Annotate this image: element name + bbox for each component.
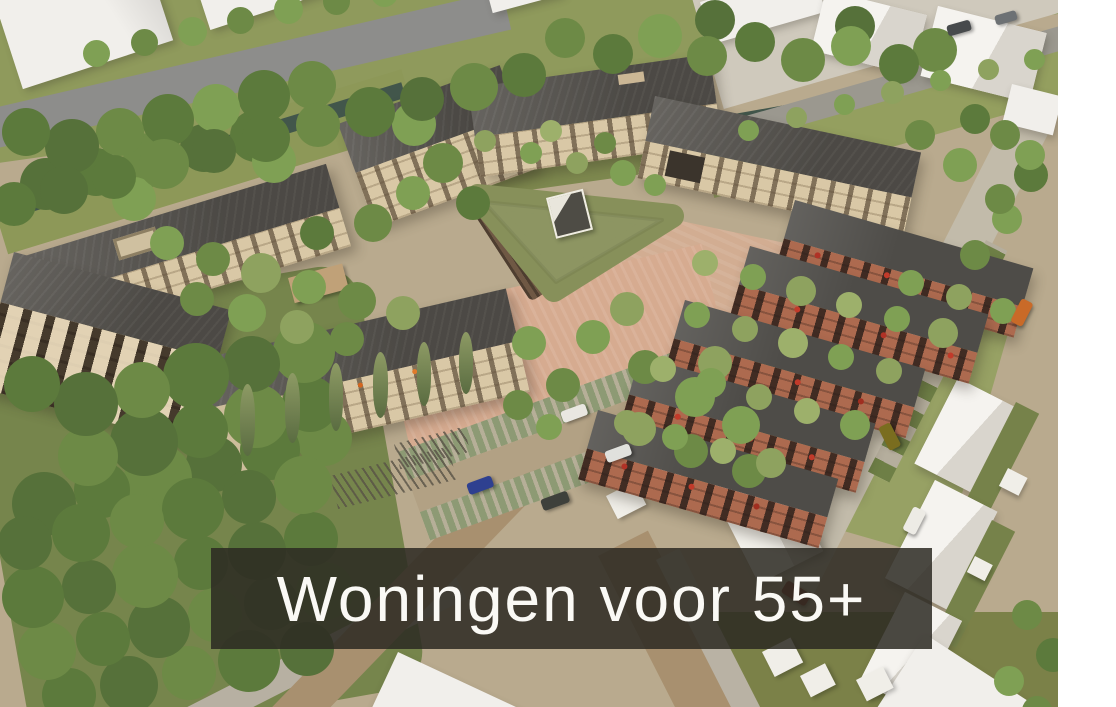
tree-cluster-courtyard-west	[150, 226, 184, 260]
tree-cluster-terraces	[692, 250, 718, 276]
tree-cluster-street-northeast	[738, 120, 759, 141]
context-building-south	[352, 652, 670, 707]
poplar-tree	[240, 384, 255, 456]
poplar-tree	[285, 373, 300, 443]
tree-cluster-park-lower	[0, 516, 52, 570]
poplar-tree	[373, 352, 388, 418]
hero-image: Woningen voor 55+	[0, 0, 1116, 707]
tree-cluster-park-upper	[4, 356, 60, 412]
poplar-tree	[417, 342, 431, 406]
poplar-tree	[459, 332, 473, 394]
tree-cluster-northwest-mass	[2, 108, 50, 156]
tree-cluster-plaza	[576, 320, 610, 354]
tree-cluster-north-band	[545, 18, 585, 58]
tree-cluster-east-road	[990, 120, 1020, 150]
aerial-render-scene: Woningen voor 55+	[0, 0, 1058, 707]
title-banner: Woningen voor 55+	[211, 548, 932, 649]
poplar-tree	[329, 363, 343, 431]
banner-title: Woningen voor 55+	[277, 562, 867, 636]
tree-plaza-round	[503, 390, 533, 420]
tree-plaza-round	[536, 414, 562, 440]
tree-cluster-courtyard-garden	[474, 130, 496, 152]
tree-cluster-east-upper	[905, 120, 935, 150]
tree-cluster-southeast-corner	[1012, 600, 1042, 630]
tree-cluster-street-northwest	[83, 40, 110, 67]
